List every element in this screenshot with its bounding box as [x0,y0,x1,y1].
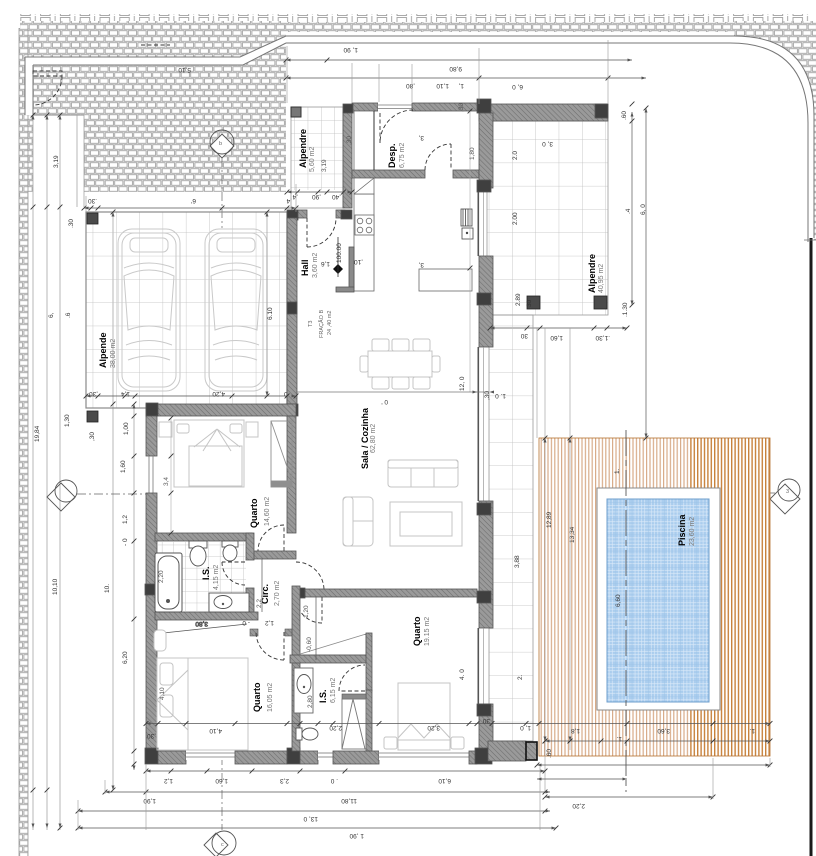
svg-text:Quarto: Quarto [249,498,259,528]
svg-text:9,80: 9,80 [449,65,462,72]
svg-text:12,89: 12,89 [546,511,553,528]
svg-text:3,60: 3,60 [657,727,670,734]
svg-text:Quarto: Quarto [412,616,422,646]
svg-text:1.: 1. [749,727,755,734]
svg-text:c: c [221,842,224,848]
svg-text:1,60: 1,60 [120,460,127,473]
svg-text:1,60: 1,60 [550,334,563,341]
svg-text:4,15 m2: 4,15 m2 [213,565,220,590]
svg-text:4,20: 4,20 [212,390,225,397]
svg-text:.60: .60 [546,749,553,758]
svg-text:5,10: 5,10 [178,66,191,73]
svg-text:3,4: 3,4 [163,477,170,486]
svg-text:4. 0: 4. 0 [459,669,466,680]
svg-text:23,60 m2: 23,60 m2 [689,517,696,546]
svg-text:1,80: 1,80 [469,147,476,160]
svg-text:3,: 3, [418,134,424,141]
svg-text:2,20: 2,20 [158,570,165,583]
svg-text:40,95 m2: 40,95 m2 [598,264,605,293]
svg-text:5,60 m2: 5,60 m2 [309,147,316,172]
svg-text:Alpendre: Alpendre [298,129,308,168]
svg-text:6, 0: 6, 0 [640,204,647,215]
svg-text:1 ,90: 1 ,90 [349,832,364,839]
svg-text:b: b [219,141,222,147]
svg-text:3,60 m2: 3,60 m2 [312,253,319,278]
svg-text:Alpende: Alpende [98,332,108,368]
svg-text:2,3: 2,3 [280,777,289,784]
svg-text:6,60: 6,60 [615,594,622,607]
svg-text:24 ,40 m2: 24 ,40 m2 [327,311,333,335]
svg-text:2,70 m2: 2,70 m2 [274,581,281,606]
svg-text:3, 0: 3, 0 [542,140,553,147]
svg-text:-0,60: -0,60 [306,637,313,652]
svg-text:,40: ,40 [332,193,341,200]
svg-text:2.00: 2.00 [512,212,519,225]
svg-text:6,20: 6,20 [122,651,129,664]
svg-text:16,05 m2: 16,05 m2 [267,683,274,712]
svg-text:- 0: - 0 [242,619,250,626]
svg-text:1,90: 1,90 [143,797,156,804]
svg-text:2.: 2. [517,674,524,680]
svg-text:2.89: 2.89 [515,293,522,306]
svg-text:.1,30: .1,30 [595,334,610,341]
svg-text:.30: .30 [88,197,97,204]
svg-text:1, 90: 1, 90 [343,46,358,53]
svg-text:19.15 m2: 19.15 m2 [424,617,431,646]
svg-text:1,2: 1,2 [164,777,173,784]
svg-text:100.00: 100.00 [336,243,343,263]
svg-text:.6: .6 [65,312,72,318]
svg-text:13, 0: 13, 0 [303,815,318,822]
svg-text:30: 30 [526,299,533,307]
svg-text:I.S.: I.S. [201,566,211,580]
svg-text:6, 0: 6, 0 [512,83,523,90]
svg-text:4,10: 4,10 [209,727,222,734]
svg-text:2,20: 2,20 [572,802,585,809]
svg-text:1.: 1. [616,735,622,742]
svg-text:1,2: 1,2 [122,515,129,524]
svg-text:1,00: 1,00 [123,422,130,435]
svg-text:3: 3 [786,489,789,495]
svg-text:10,10: 10,10 [52,578,59,595]
svg-text:1,2: 1,2 [265,619,274,626]
svg-text:10.: 10. [104,584,111,593]
svg-text:,30: ,30 [346,136,353,145]
svg-text:14,60 m2: 14,60 m2 [264,497,271,526]
svg-text:6,: 6, [48,312,55,318]
svg-text:.30: .30 [68,219,75,228]
svg-text:6.10: 6.10 [267,307,274,320]
svg-text:,30: ,30 [458,103,465,112]
svg-text:Piscina: Piscina [677,513,687,546]
svg-text:I.S.: I.S. [318,689,328,703]
svg-text:1,10: 1,10 [436,82,449,89]
svg-text:4,10: 4,10 [159,687,166,700]
svg-text:3,80: 3,80 [195,620,208,627]
svg-text:. 0: . 0 [330,777,338,784]
svg-text:- 0: - 0 [122,538,129,546]
svg-text:38,00 m2: 38,00 m2 [110,339,117,368]
svg-text:1. 0: 1. 0 [495,392,506,399]
svg-text:,10: ,10 [354,258,363,265]
svg-text:2,80: 2,80 [307,695,314,708]
svg-text:30: 30 [482,717,490,724]
svg-text:6,15 m2: 6,15 m2 [330,678,337,703]
svg-text:Alpendre: Alpendre [587,254,597,293]
svg-text:3,: 3, [418,261,424,268]
svg-text:.4: .4 [625,208,632,214]
svg-text:1, 0: 1, 0 [520,724,531,731]
svg-text:Quarto: Quarto [252,682,262,712]
svg-text:3,88: 3,88 [514,555,521,568]
svg-text:12, 0: 12, 0 [459,376,466,391]
svg-text:19,84: 19,84 [34,425,41,442]
svg-text:62,80 m2: 62,80 m2 [370,424,377,453]
svg-text:,30: ,30 [484,391,491,400]
svg-text:Desp.: Desp. [387,143,397,168]
svg-text:0 ': 0 ' [381,398,388,405]
svg-text:Sala / Cozinha: Sala / Cozinha [360,407,370,469]
svg-text:6': 6' [191,197,196,204]
svg-text:3,19: 3,19 [53,155,60,168]
svg-text:1,60: 1,60 [215,777,228,784]
svg-text:,30: ,30 [147,732,156,739]
svg-text:.1.30: .1.30 [622,302,629,317]
svg-text:6,10: 6,10 [438,777,451,784]
svg-text:T3: T3 [308,321,314,327]
svg-text:,30: ,30 [89,432,96,441]
svg-text:3,19: 3,19 [321,159,328,172]
svg-text:6,75 m2: 6,75 m2 [399,143,406,168]
svg-text:1.: 1. [614,468,621,474]
svg-text:1,8: 1,8 [571,727,580,734]
svg-text:Hall: Hall [300,259,310,276]
svg-text:1,: 1, [458,82,464,89]
svg-text:,80: ,80 [406,82,415,89]
svg-text:11,80: 11,80 [341,797,357,804]
svg-text:1,20: 1,20 [303,605,310,618]
svg-text:3,20: 3,20 [427,724,440,731]
svg-text:2.0: 2.0 [512,151,519,160]
svg-text:1,30: 1,30 [64,414,71,427]
svg-text:.60: .60 [621,111,628,120]
svg-text:1,6: 1,6 [321,260,330,267]
svg-text:FRAÇÃO B: FRAÇÃO B [318,310,325,338]
